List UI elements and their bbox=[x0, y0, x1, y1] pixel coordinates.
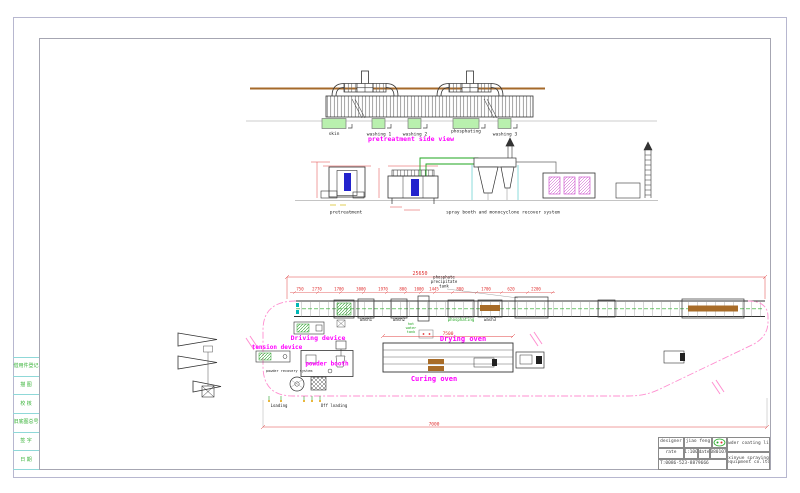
dim-seg: 1970 bbox=[378, 287, 388, 292]
booth-filter-blue bbox=[411, 179, 419, 196]
brown-bar-1 bbox=[480, 305, 500, 311]
cyan-mark-2 bbox=[296, 310, 299, 314]
label-loading: Loading bbox=[271, 403, 288, 408]
title-block: designer jiao feng rate 1:100 date 08010… bbox=[658, 437, 770, 470]
phosphate-note-line3: tank bbox=[439, 284, 449, 289]
workpiece-blue bbox=[344, 173, 351, 191]
tank-label-washing3: washing 3 bbox=[493, 132, 518, 138]
dim-seg: 800 bbox=[399, 287, 407, 292]
label-curing-oven: Curing oven bbox=[411, 375, 457, 383]
hot-water-tank-label: hot water tank bbox=[406, 322, 417, 334]
section-label-spray-booth: spray booth and monocyclone recover syst… bbox=[446, 210, 560, 216]
label-driving-device: Driving device bbox=[291, 334, 346, 342]
label-powder-recovery: powder recovery system bbox=[266, 369, 312, 373]
label-wash1: wash1 bbox=[360, 317, 373, 322]
dim-seg: 1000 bbox=[414, 287, 424, 292]
dim-seg: 1700 bbox=[481, 287, 491, 292]
drawing-canvas: skin washing 1 washing 2 phosphating was… bbox=[0, 0, 800, 493]
side-view-title: pretreatment side view bbox=[368, 135, 454, 143]
plan-view: 25650 750 2770 1700 3000 1970 800 1000 1… bbox=[178, 271, 769, 429]
monocyclone bbox=[474, 138, 516, 200]
dim-seg: 3000 bbox=[356, 287, 366, 292]
tension-device-drawing bbox=[256, 351, 290, 362]
pretreatment-tunnel bbox=[326, 96, 533, 117]
cyan-mark-1 bbox=[296, 303, 299, 307]
designer-label-cell: designer bbox=[658, 437, 684, 448]
pretreatment-section bbox=[321, 167, 365, 198]
company-name-cell: xinyue spraying equipment co.ltd bbox=[727, 452, 770, 470]
label-powder-booth: powder booth bbox=[305, 361, 349, 368]
exhaust-vent-1 bbox=[332, 71, 398, 96]
label-phosphating-plan: phosphating bbox=[448, 317, 475, 322]
dim-seg: 620 bbox=[507, 287, 515, 292]
scale-value-cell: 1:100 bbox=[684, 448, 698, 459]
dim-seg: 2200 bbox=[531, 287, 541, 292]
exhaust-ladder bbox=[616, 142, 652, 198]
spray-booth-section bbox=[388, 170, 438, 204]
scale-label-cell: rate bbox=[658, 448, 684, 459]
label-drying-oven: Drying oven bbox=[440, 335, 486, 343]
logo-cell bbox=[712, 437, 727, 448]
after-filter-box bbox=[543, 173, 595, 198]
designer-value-cell: jiao feng bbox=[684, 437, 712, 448]
section-views: pretreatment bbox=[295, 138, 658, 216]
date-label-cell: date bbox=[698, 448, 710, 459]
section-label-pretreatment: pretreatment bbox=[330, 210, 363, 216]
company-logo-icon bbox=[713, 438, 726, 447]
dim-seg: 750 bbox=[296, 287, 304, 292]
exhaust-vent-2 bbox=[437, 71, 503, 96]
cad-application-canvas: { "drawing": { "top_view": { "title": "p… bbox=[0, 0, 800, 493]
company-line2: equipment co.ltd bbox=[727, 461, 770, 466]
hot-water-line3: tank bbox=[407, 330, 416, 334]
date-value-cell: 080107 bbox=[710, 448, 727, 459]
label-off-loading: Off loading bbox=[321, 403, 348, 408]
label-wash2: wash2 bbox=[393, 317, 406, 322]
recovery-cyclone-plan bbox=[290, 377, 326, 391]
brown-bar-2 bbox=[688, 306, 738, 312]
dim-seg: 1700 bbox=[334, 287, 344, 292]
tank-label-skin: skin bbox=[329, 131, 340, 137]
dim-overall: 25650 bbox=[412, 271, 427, 277]
label-wash3: wash3 bbox=[484, 317, 497, 322]
driving-device-drawing bbox=[294, 322, 324, 334]
segment-dims: 750 2770 1700 3000 1970 800 1000 1445 88… bbox=[296, 287, 541, 292]
dim-bottom: 7000 bbox=[429, 422, 440, 428]
phone-cell: T:0086-523-8879666 bbox=[658, 459, 727, 470]
flow-arrows bbox=[178, 333, 221, 392]
dot-box bbox=[419, 330, 433, 338]
duct-to-filter bbox=[516, 162, 556, 173]
tank-label-phosphating: phosphating bbox=[451, 129, 481, 135]
dim-seg: 2770 bbox=[312, 287, 322, 292]
product-name-cell: powder coating line bbox=[727, 437, 770, 452]
burner-bar-1 bbox=[428, 359, 444, 364]
tanks-row bbox=[322, 119, 511, 129]
hanger-hooks bbox=[268, 396, 321, 402]
burner-bar-2 bbox=[428, 366, 444, 371]
dim-seg: 1445 bbox=[429, 287, 439, 292]
pretreatment-side-view: skin washing 1 washing 2 phosphating was… bbox=[246, 71, 657, 143]
label-tension-device: tension device bbox=[252, 344, 303, 351]
